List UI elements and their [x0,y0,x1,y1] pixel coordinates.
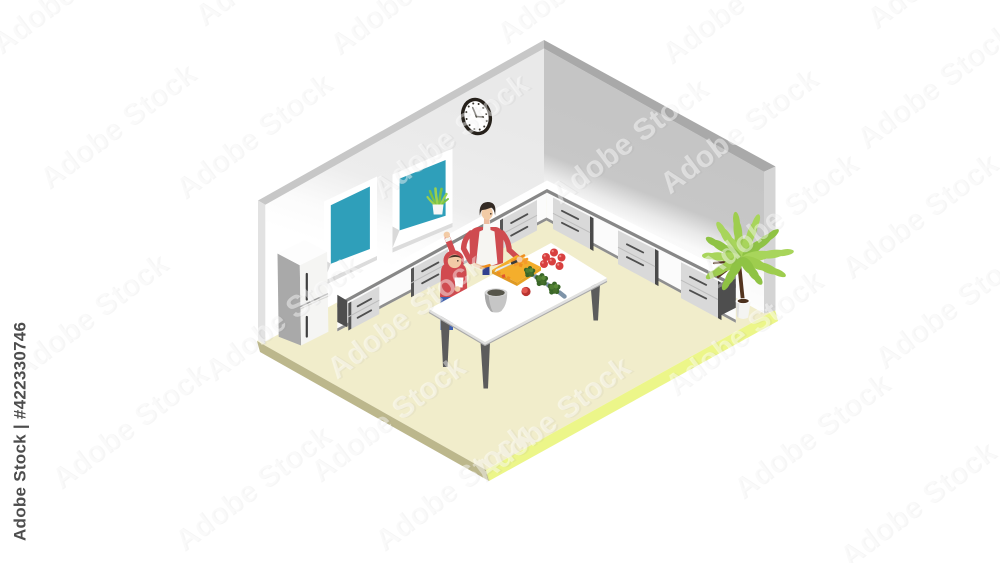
svg-text:Adobe Stock | #422330746: Adobe Stock | #422330746 [11,322,30,541]
